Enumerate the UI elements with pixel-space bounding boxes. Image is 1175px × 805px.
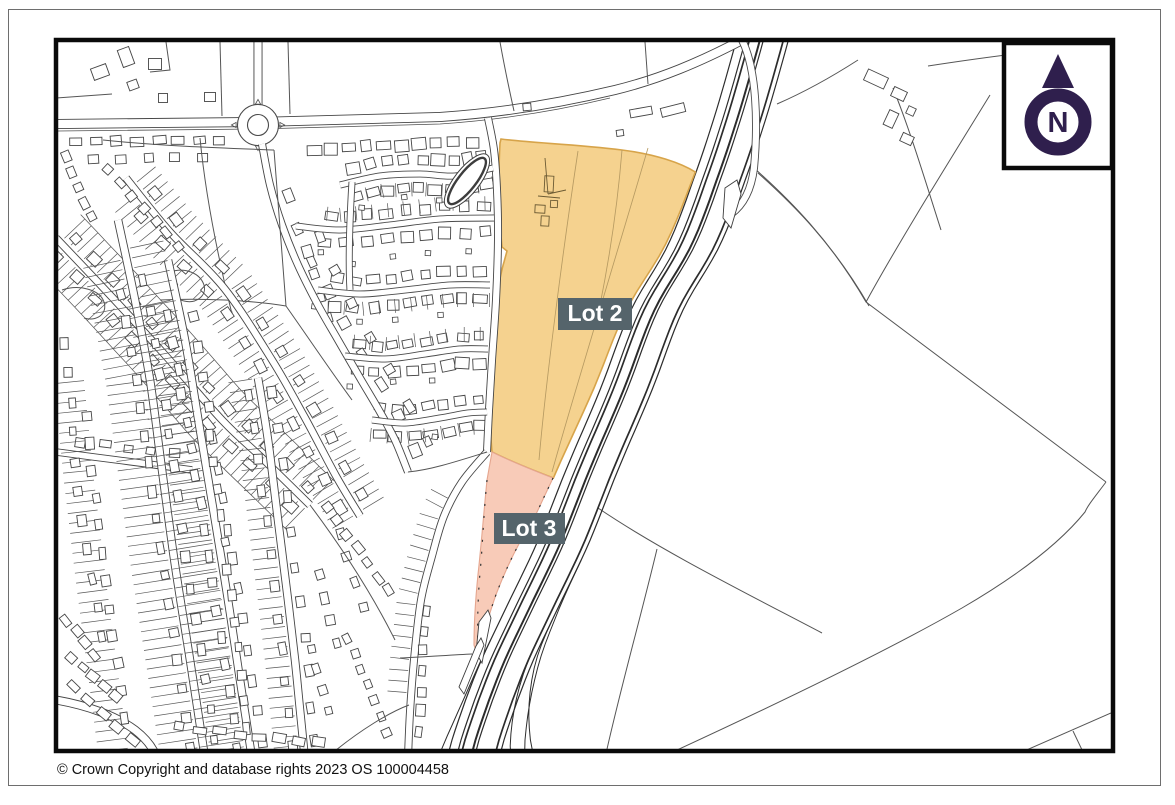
svg-text:Lot 2: Lot 2 xyxy=(568,300,623,326)
svg-text:Lot 3: Lot 3 xyxy=(502,515,557,541)
svg-text:N: N xyxy=(1048,107,1069,139)
svg-text:© Crown Copyright and database: © Crown Copyright and database rights 20… xyxy=(57,762,449,778)
